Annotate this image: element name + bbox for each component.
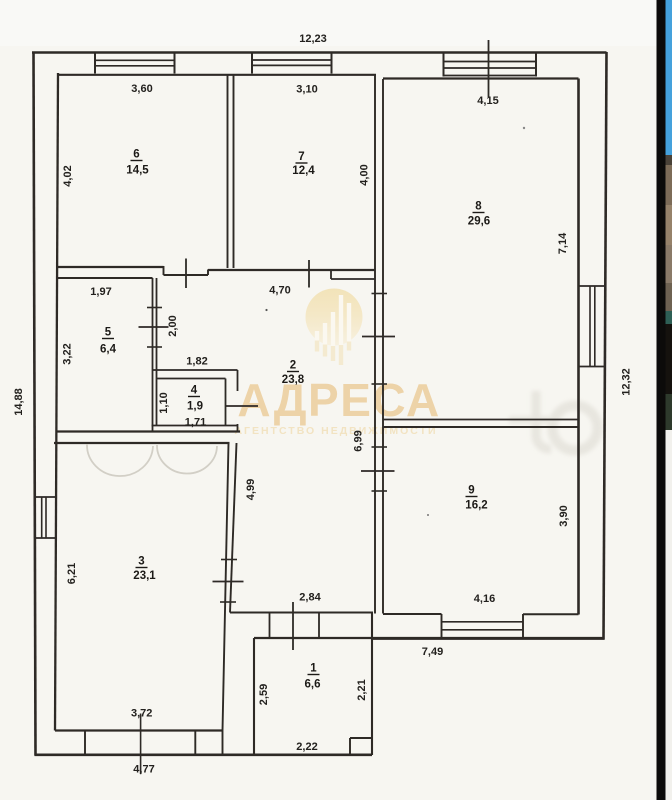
svg-text:12,4: 12,4 (292, 165, 315, 177)
svg-text:1: 1 (310, 663, 317, 675)
svg-text:4,16: 4,16 (474, 593, 495, 605)
svg-text:7,14: 7,14 (557, 232, 569, 254)
svg-text:2,00: 2,00 (167, 315, 179, 336)
svg-text:4,02: 4,02 (62, 165, 74, 186)
svg-text:7,49: 7,49 (422, 646, 443, 658)
svg-text:6,6: 6,6 (305, 679, 321, 691)
svg-text:2,59: 2,59 (258, 684, 270, 705)
svg-text:1,9: 1,9 (187, 401, 203, 413)
svg-text:9: 9 (468, 485, 474, 497)
svg-text:4,70: 4,70 (269, 285, 290, 297)
svg-text:29,6: 29,6 (468, 216, 490, 228)
svg-text:14,5: 14,5 (126, 165, 149, 177)
svg-text:23,1: 23,1 (133, 570, 156, 582)
svg-text:3,72: 3,72 (131, 708, 152, 720)
svg-text:14,88: 14,88 (13, 388, 25, 416)
svg-text:4,99: 4,99 (245, 479, 257, 500)
svg-text:6,99: 6,99 (353, 430, 365, 451)
svg-text:12,23: 12,23 (299, 33, 327, 45)
svg-text:2,84: 2,84 (299, 592, 321, 604)
svg-text:3,60: 3,60 (131, 83, 152, 95)
svg-text:3,22: 3,22 (62, 343, 74, 364)
svg-text:8: 8 (475, 201, 482, 213)
svg-text:4: 4 (191, 385, 198, 397)
svg-text:4,15: 4,15 (477, 95, 498, 107)
svg-text:1,71: 1,71 (185, 417, 206, 429)
svg-text:4,77: 4,77 (133, 764, 154, 776)
svg-text:2: 2 (290, 360, 296, 372)
svg-text:23,8: 23,8 (282, 374, 305, 386)
svg-text:7: 7 (298, 151, 304, 163)
svg-text:3,10: 3,10 (296, 84, 317, 96)
svg-text:2,22: 2,22 (296, 741, 317, 753)
svg-text:3: 3 (138, 556, 144, 568)
svg-text:6,21: 6,21 (66, 563, 78, 584)
svg-text:1,10: 1,10 (158, 392, 170, 413)
svg-text:2,21: 2,21 (356, 679, 368, 700)
svg-text:5: 5 (105, 327, 112, 339)
svg-text:4,00: 4,00 (359, 164, 371, 185)
svg-text:1,82: 1,82 (186, 356, 207, 368)
svg-text:6,4: 6,4 (100, 344, 117, 356)
svg-text:12,32: 12,32 (621, 368, 633, 396)
svg-text:6: 6 (133, 149, 139, 161)
svg-text:3,90: 3,90 (558, 505, 570, 526)
svg-text:16,2: 16,2 (465, 500, 487, 512)
svg-text:1,97: 1,97 (90, 286, 111, 298)
svg-text:АДРЕСА: АДРЕСА (237, 374, 440, 426)
